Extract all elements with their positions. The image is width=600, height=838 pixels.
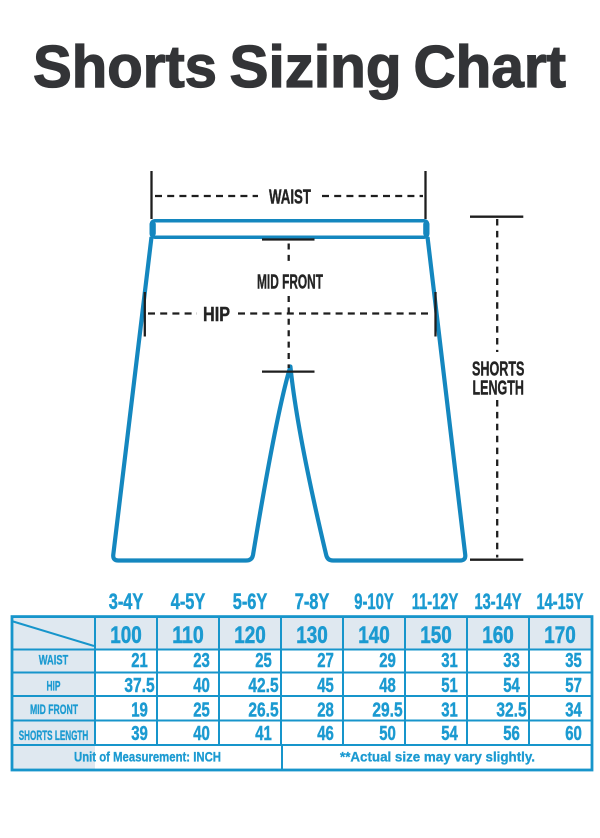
svg-text:9-10Y: 9-10Y: [354, 589, 394, 614]
svg-text:110: 110: [172, 622, 204, 649]
svg-text:Sizing: Sizing: [230, 34, 402, 100]
svg-text:140: 140: [358, 622, 390, 649]
svg-text:45: 45: [317, 675, 334, 697]
svg-text:Shorts: Shorts: [33, 34, 217, 100]
svg-text:50: 50: [379, 723, 396, 745]
svg-text:41: 41: [255, 723, 272, 745]
svg-text:46: 46: [317, 723, 334, 745]
svg-text:120: 120: [234, 622, 266, 649]
svg-text:19: 19: [131, 700, 148, 722]
svg-text:23: 23: [193, 650, 210, 672]
svg-text:40: 40: [193, 723, 210, 745]
svg-text:Unit of Measurement: INCH: Unit of Measurement: INCH: [74, 749, 221, 765]
svg-text:26.5: 26.5: [248, 700, 278, 722]
svg-text:7-8Y: 7-8Y: [295, 589, 330, 614]
svg-text:54: 54: [503, 675, 520, 697]
svg-text:14-15Y: 14-15Y: [537, 589, 584, 614]
svg-text:40: 40: [193, 675, 210, 697]
svg-text:**Actual size may vary slightl: **Actual size may vary slightly.: [340, 749, 535, 765]
svg-text:11-12Y: 11-12Y: [412, 589, 459, 614]
svg-text:31: 31: [441, 650, 458, 672]
svg-text:25: 25: [193, 700, 210, 722]
svg-text:150: 150: [420, 622, 452, 649]
svg-text:100: 100: [110, 622, 142, 649]
svg-text:34: 34: [565, 700, 582, 722]
svg-text:27: 27: [317, 650, 334, 672]
svg-text:21: 21: [131, 650, 148, 672]
svg-text:3-4Y: 3-4Y: [109, 589, 144, 614]
svg-text:HIP: HIP: [47, 678, 61, 693]
svg-text:MID FRONT: MID FRONT: [30, 702, 78, 717]
svg-text:57: 57: [565, 675, 582, 697]
svg-text:LENGTH: LENGTH: [473, 378, 524, 400]
svg-text:32.5: 32.5: [496, 700, 526, 722]
svg-text:35: 35: [565, 650, 582, 672]
svg-text:29: 29: [379, 650, 396, 672]
svg-text:48: 48: [379, 675, 396, 697]
svg-text:130: 130: [296, 622, 328, 649]
svg-text:56: 56: [503, 723, 520, 745]
svg-text:WAIST: WAIST: [39, 653, 69, 668]
svg-text:29.5: 29.5: [372, 700, 402, 722]
svg-text:37.5: 37.5: [124, 675, 154, 697]
svg-text:SHORTS LENGTH: SHORTS LENGTH: [19, 728, 89, 743]
svg-text:13-14Y: 13-14Y: [475, 589, 522, 614]
svg-text:31: 31: [441, 700, 458, 722]
svg-text:25: 25: [255, 650, 272, 672]
svg-text:WAIST: WAIST: [269, 186, 311, 208]
svg-text:HIP: HIP: [203, 304, 230, 326]
svg-text:4-5Y: 4-5Y: [171, 589, 206, 614]
svg-text:170: 170: [544, 622, 576, 649]
svg-text:5-6Y: 5-6Y: [233, 589, 268, 614]
svg-text:60: 60: [565, 723, 582, 745]
svg-text:Chart: Chart: [414, 34, 567, 100]
svg-text:42.5: 42.5: [248, 675, 278, 697]
svg-text:51: 51: [441, 675, 458, 697]
svg-text:MID FRONT: MID FRONT: [257, 272, 323, 294]
svg-text:28: 28: [317, 700, 334, 722]
svg-text:33: 33: [503, 650, 520, 672]
svg-text:39: 39: [131, 723, 148, 745]
svg-text:54: 54: [441, 723, 458, 745]
svg-text:160: 160: [482, 622, 514, 649]
